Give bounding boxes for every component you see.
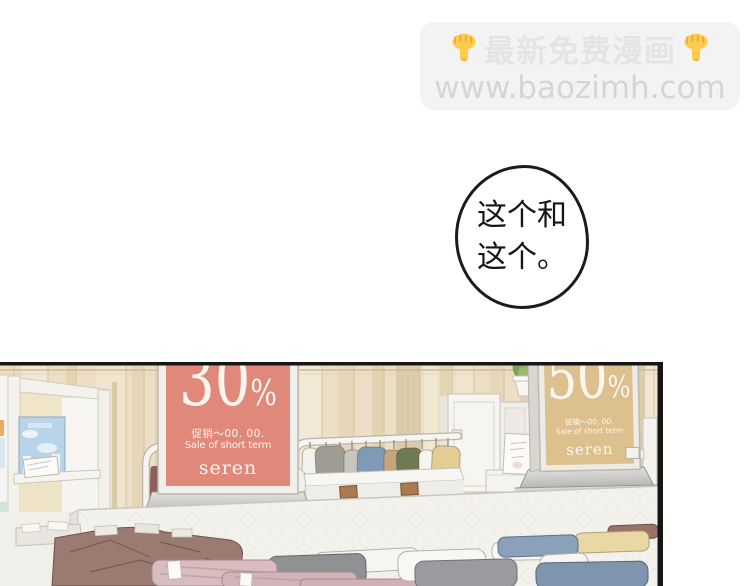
banner-headline: 最新免费漫画 [484, 26, 676, 71]
pointing-down-icon [680, 32, 712, 64]
speech-line: 这个和 [477, 195, 567, 237]
sign-brand: seren [546, 439, 634, 459]
sale-sign-50: 50% 促销～00. 00. Sale of short term seren [512, 362, 663, 510]
sign-brand: seren [166, 457, 290, 479]
banner-url[interactable]: www.baozimh.com [434, 70, 726, 106]
comic-panel: 30% 促销～00. 00. Sale of short term seren [0, 362, 663, 586]
promo-banner[interactable]: 最新免费漫画 www.baozimh.com [420, 22, 740, 110]
speech-line: 这个。 [477, 237, 567, 279]
pointing-down-icon [448, 32, 480, 64]
sign-promo-cn: 促销～00. 00. [166, 426, 290, 441]
manga-reader-page: 最新免费漫画 www.baozimh.com 这个和 这个。 [0, 0, 750, 586]
sale-sign-30: 30% 促销～00. 00. Sale of short term seren [140, 362, 326, 532]
shelf-card [23, 456, 59, 477]
sign-promo-en: Sale of short term [545, 425, 633, 436]
left-edge-fixture [0, 376, 8, 586]
speech-bubble: 这个和 这个。 [455, 165, 589, 309]
sign-percent: 30% [166, 362, 290, 418]
sign-percent: 50% [544, 362, 633, 409]
sign-promo-en: Sale of short term [166, 440, 290, 451]
